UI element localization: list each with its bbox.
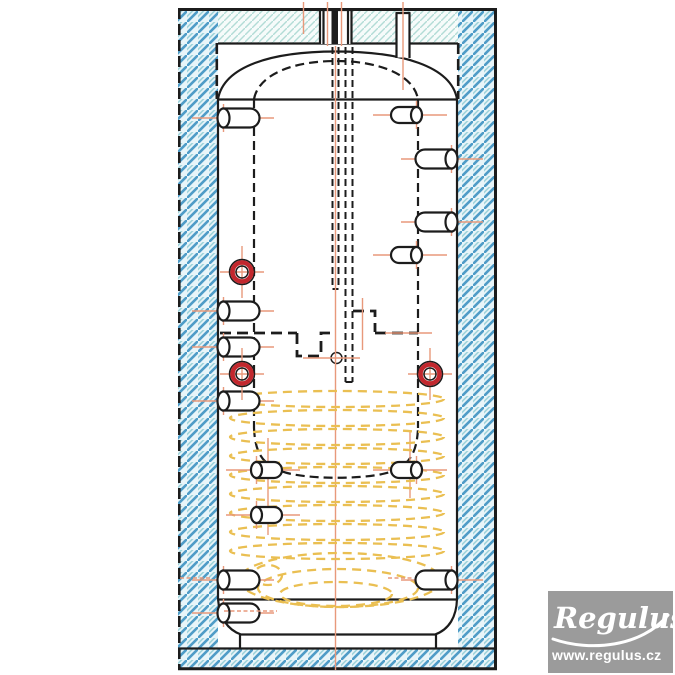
coil-turn <box>230 429 444 445</box>
port-glyph <box>416 213 458 232</box>
port-glyph <box>251 507 282 523</box>
port-glyph <box>416 150 458 169</box>
tank-cross-section-drawing: Regulus www.regulus.cz <box>0 0 675 675</box>
sensor-marker <box>408 348 452 400</box>
port-glyph <box>218 302 260 321</box>
insulation-right-column-hatch <box>458 8 497 648</box>
thermowell-long <box>346 47 353 382</box>
port-right-inner-lower <box>373 241 447 269</box>
port-glyph <box>218 571 260 590</box>
port-glyph <box>218 604 260 623</box>
baffle-channel <box>297 333 331 356</box>
sensor-marker <box>220 246 264 298</box>
port-glyph <box>218 392 260 411</box>
coil-turn <box>230 524 444 540</box>
baffle-step <box>353 311 375 332</box>
insulation-left-column-hatch <box>178 8 218 648</box>
coil-turn <box>230 543 444 559</box>
port-glyph <box>391 462 422 478</box>
port-glyph <box>218 338 260 357</box>
base-plate-hatch <box>178 648 497 669</box>
tank-skirt <box>240 635 436 649</box>
logo-wordmark: Regulus <box>553 601 675 635</box>
coil-turn <box>230 391 444 407</box>
coil-turn <box>230 486 444 502</box>
drawing-canvas: Regulus www.regulus.cz <box>0 0 675 675</box>
port-right-top-inner <box>373 101 447 129</box>
regulus-logo: Regulus www.regulus.cz <box>548 591 675 673</box>
coil-turn <box>230 410 444 426</box>
centerlines <box>268 2 432 670</box>
port-glyph <box>251 462 282 478</box>
heat-exchanger-coil <box>230 391 444 607</box>
port-glyph <box>416 571 458 590</box>
port-glyph <box>391 107 422 123</box>
top-pipe-cluster-divider <box>332 10 339 44</box>
logo-url: www.regulus.cz <box>551 647 661 663</box>
thermowells <box>331 47 353 382</box>
port-glyph <box>391 247 422 263</box>
port-glyph <box>218 109 260 128</box>
